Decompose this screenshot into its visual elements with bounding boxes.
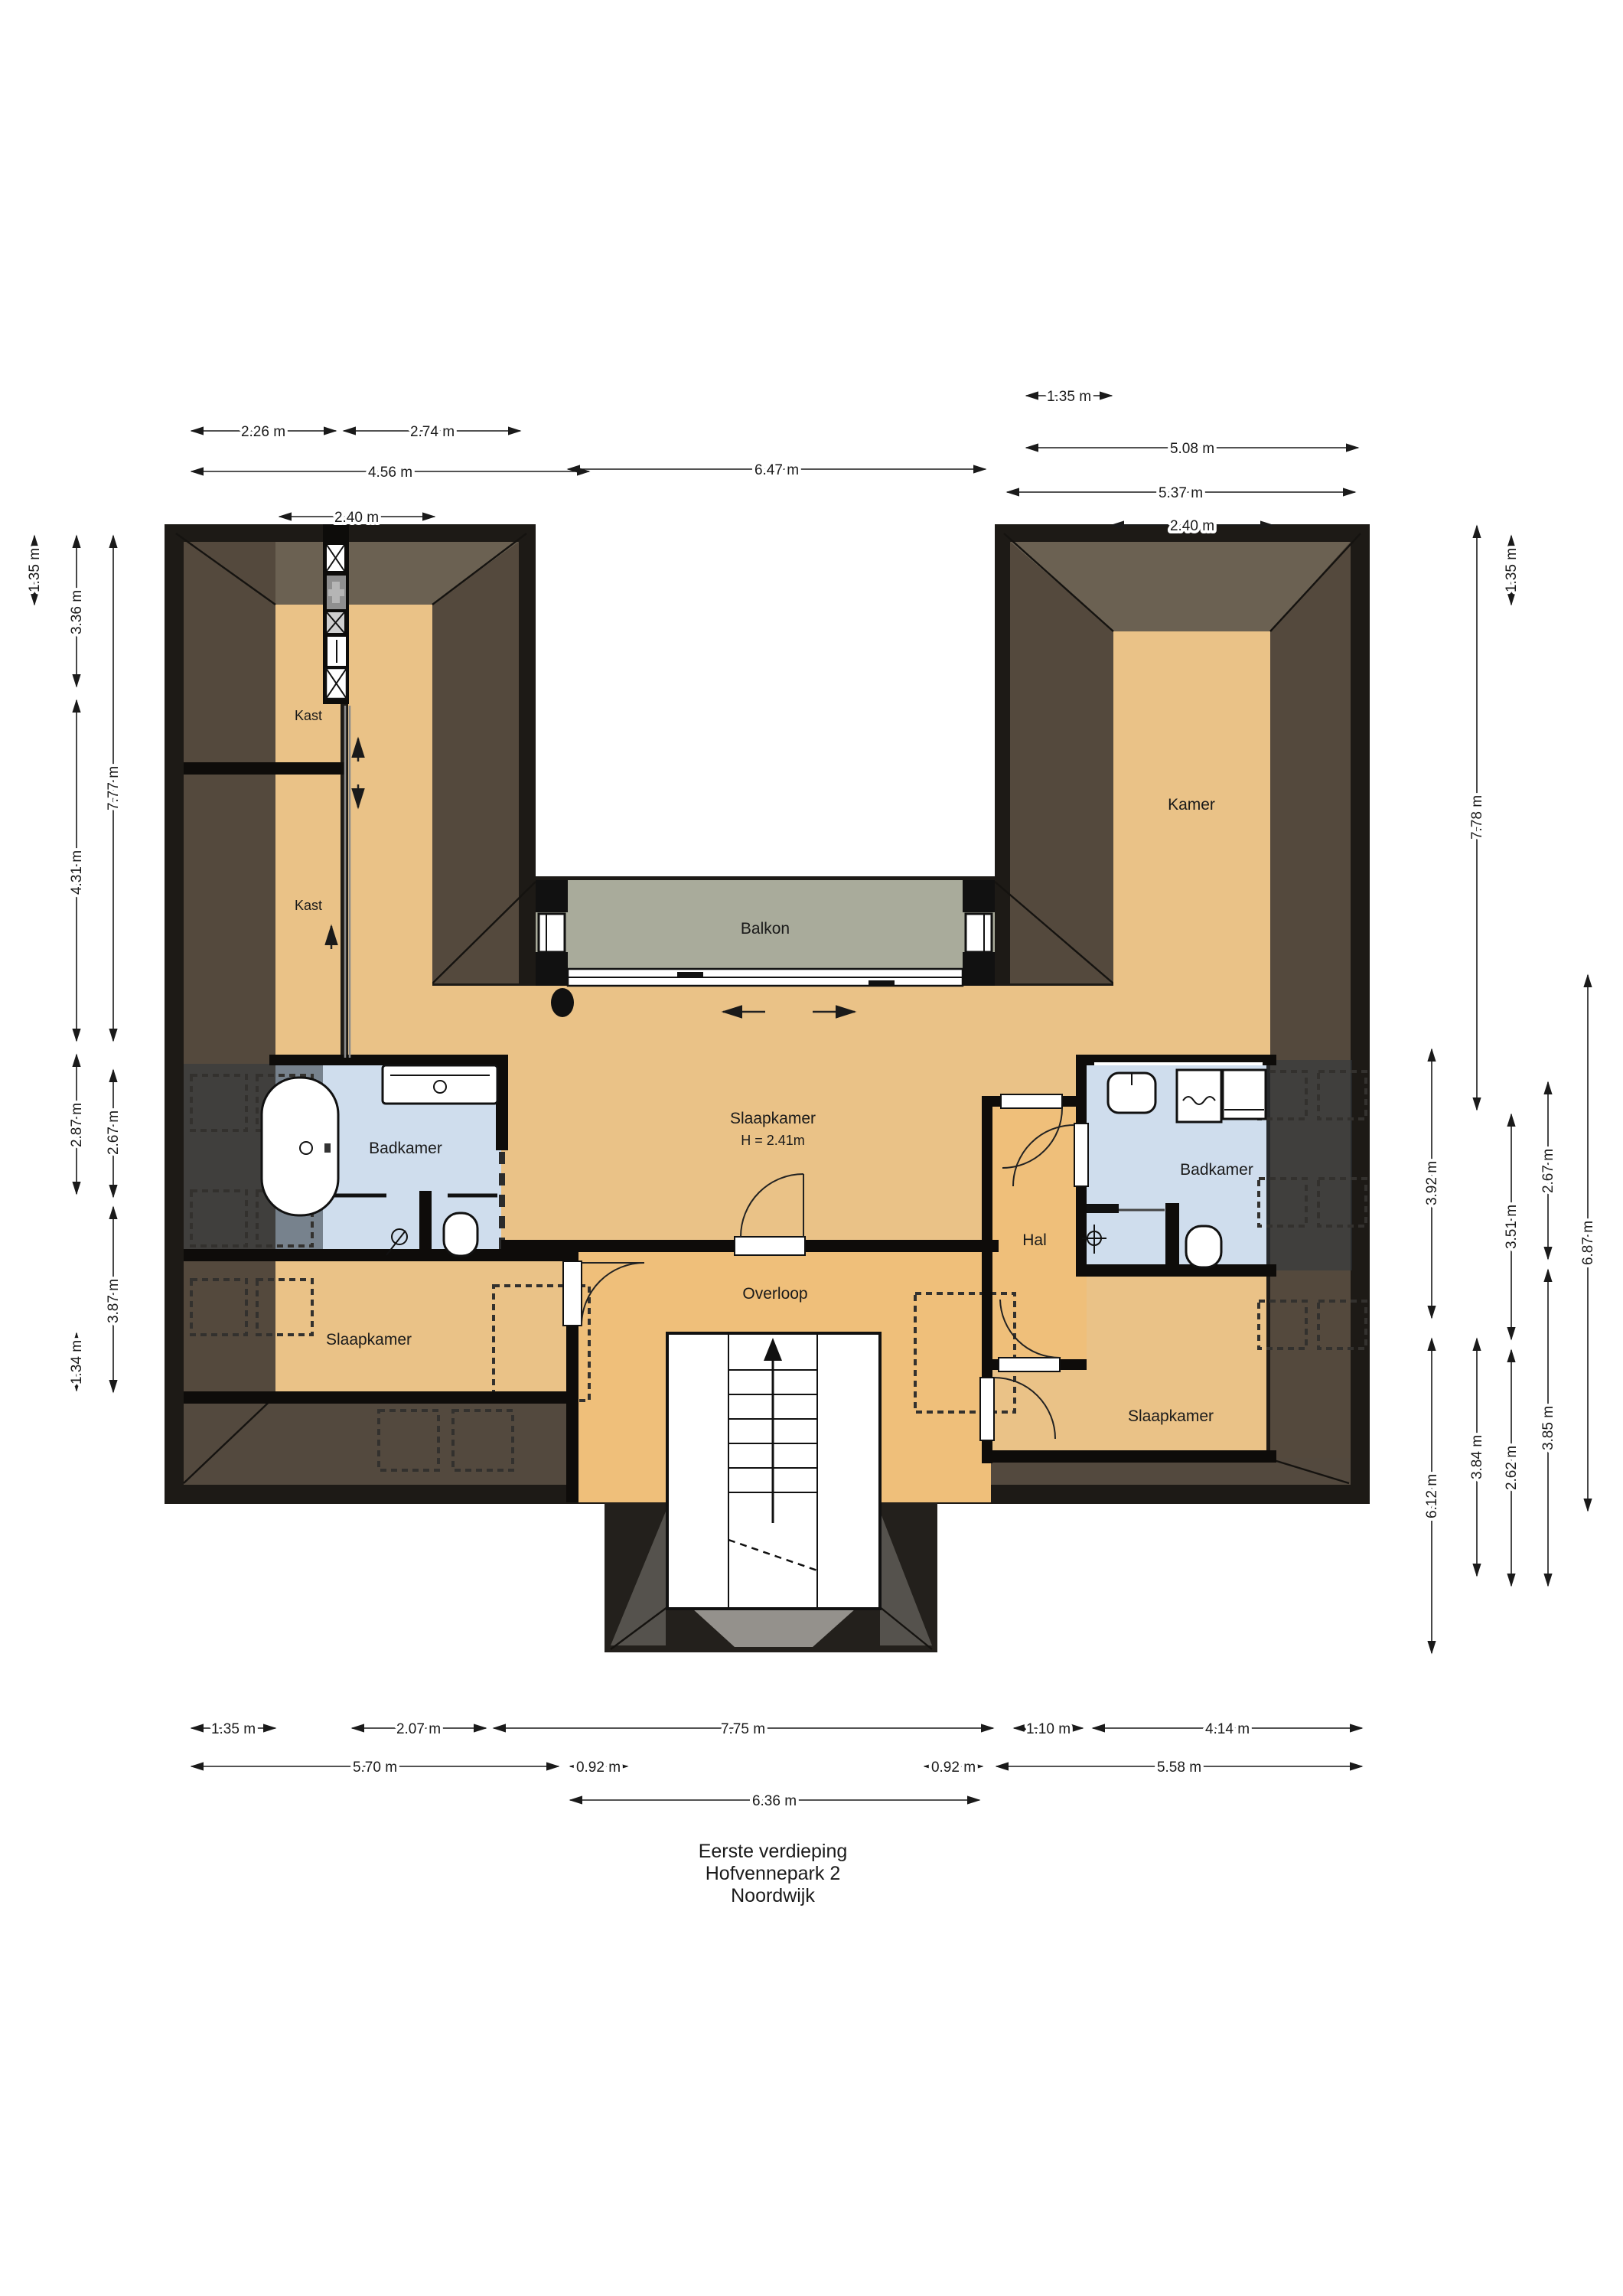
dimensions-bottom: 1.35 m 2.07 m 7.75 m 1.10 m 4.14 m 5.70 … [191, 1721, 1362, 1809]
svg-text:3.84 m: 3.84 m [1469, 1435, 1485, 1479]
dimension-line: 2.26 m [191, 424, 336, 440]
dimension-line: 1.10 m [1014, 1721, 1083, 1737]
svg-text:5.08 m: 5.08 m [1170, 441, 1214, 457]
floorplan-canvas: Kast Kast Kamer Balkon Slaapkamer H = 2.… [0, 0, 1623, 2296]
double-sink-counter [383, 1065, 497, 1104]
dimension-line: 2.40 m [279, 510, 435, 526]
label-kast-top: Kast [295, 708, 322, 723]
svg-text:7.77 m: 7.77 m [106, 766, 122, 810]
svg-text:2.67 m: 2.67 m [1540, 1149, 1556, 1193]
dimension-line: 4.31 m [69, 700, 85, 1041]
stairwell [667, 1333, 880, 1609]
label-badkamer-left: Badkamer [369, 1140, 442, 1157]
title-floor: Eerste verdieping [699, 1841, 848, 1862]
label-hal: Hal [1022, 1231, 1047, 1249]
dimension-line: 2.07 m [352, 1721, 486, 1737]
svg-text:4.14 m: 4.14 m [1205, 1721, 1250, 1737]
dimension-line: 5.70 m [191, 1760, 559, 1776]
svg-text:2.07 m: 2.07 m [396, 1721, 441, 1737]
svg-text:5.70 m: 5.70 m [353, 1760, 397, 1776]
svg-text:6.47 m: 6.47 m [754, 462, 799, 478]
svg-text:0.92 m: 0.92 m [931, 1760, 976, 1776]
dimension-line: 3.87 m [106, 1207, 122, 1392]
svg-text:7.78 m: 7.78 m [1469, 795, 1485, 840]
dimension-line: 6.12 m [1424, 1339, 1440, 1653]
svg-text:1.35 m: 1.35 m [27, 548, 43, 592]
dimension-line: 5.37 m [1007, 485, 1355, 501]
room-strip [348, 605, 432, 987]
label-badkamer-right: Badkamer [1180, 1161, 1253, 1179]
svg-text:1.34 m: 1.34 m [69, 1340, 85, 1384]
dimension-line: 3.92 m [1424, 1049, 1440, 1318]
label-slaapkamer-right: Slaapkamer [1128, 1407, 1214, 1425]
svg-text:2.40 m: 2.40 m [1170, 518, 1214, 534]
dimension-line: 5.58 m [996, 1760, 1362, 1776]
roof-right-wing-east [1270, 542, 1351, 1485]
dimension-line: 2.62 m [1504, 1350, 1520, 1586]
dimension-line: 1.35 m [1504, 536, 1520, 605]
svg-text:2.67 m: 2.67 m [106, 1110, 122, 1155]
dimensions-left: 1.35 m 3.36 m 7.77 m 4.31 m 2.87 m 2.67 … [27, 536, 122, 1392]
svg-text:4.31 m: 4.31 m [69, 850, 85, 895]
svg-text:2.62 m: 2.62 m [1504, 1446, 1520, 1490]
svg-text:1.35 m: 1.35 m [211, 1721, 256, 1737]
dimension-line: 5.08 m [1026, 441, 1358, 457]
label-room-height: H = 2.41m [741, 1133, 805, 1148]
dimension-line: 0.92 m [924, 1760, 983, 1776]
svg-text:3.87 m: 3.87 m [106, 1279, 122, 1323]
dimension-line: 6.36 m [570, 1793, 979, 1809]
dimension-line: 3.85 m [1540, 1270, 1556, 1586]
svg-text:3.36 m: 3.36 m [69, 590, 85, 634]
svg-text:1.35 m: 1.35 m [1047, 389, 1091, 405]
roof-left-wing-east [432, 542, 519, 983]
dimension-line: 7.77 m [106, 536, 122, 1041]
dimension-line: 7.78 m [1469, 526, 1485, 1110]
svg-text:1.35 m: 1.35 m [1504, 548, 1520, 592]
svg-text:2.87 m: 2.87 m [69, 1103, 85, 1147]
dimension-line: 7.75 m [494, 1721, 993, 1737]
roof-left-wing-west2 [184, 542, 275, 1485]
svg-text:5.58 m: 5.58 m [1157, 1760, 1201, 1776]
label-overloop: Overloop [742, 1285, 807, 1303]
dimension-line: 0.92 m [570, 1760, 627, 1776]
dimension-line: 3.36 m [69, 536, 85, 687]
column-dot [551, 988, 574, 1017]
dimension-line: 4.14 m [1093, 1721, 1362, 1737]
dimension-line: 3.51 m [1504, 1114, 1520, 1339]
label-kast-bottom: Kast [295, 898, 322, 913]
svg-text:3.85 m: 3.85 m [1540, 1406, 1556, 1450]
dimension-line: 1.35 m [27, 536, 43, 605]
svg-text:3.92 m: 3.92 m [1424, 1161, 1440, 1205]
dimensions-right: 1.35 m 7.78 m 3.92 m 2.67 m 6.87 m 3.51 … [1424, 526, 1596, 1653]
toilet [1186, 1226, 1221, 1267]
dimension-line: 1.35 m [191, 1721, 275, 1737]
room-central-upper [348, 986, 1270, 1064]
label-slaapkamer-center: Slaapkamer [730, 1110, 816, 1127]
svg-text:6.36 m: 6.36 m [752, 1793, 797, 1809]
shower [1177, 1070, 1221, 1122]
svg-text:2.40 m: 2.40 m [334, 510, 379, 526]
svg-text:7.75 m: 7.75 m [721, 1721, 765, 1737]
svg-text:6.12 m: 6.12 m [1424, 1474, 1440, 1518]
dimension-line: 1.35 m [1026, 389, 1112, 405]
label-kamer: Kamer [1168, 796, 1215, 814]
svg-text:2.74 m: 2.74 m [410, 424, 455, 440]
dimension-line: 2.74 m [344, 424, 520, 440]
toilet [444, 1213, 477, 1256]
label-slaapkamer-left: Slaapkamer [326, 1331, 412, 1349]
label-balkon: Balkon [741, 920, 790, 938]
room-slaapkamer-left [275, 1255, 566, 1402]
balcony-window-right [966, 914, 992, 952]
dimension-line: 3.84 m [1469, 1339, 1485, 1576]
svg-text:6.87 m: 6.87 m [1580, 1221, 1596, 1265]
title-block: Eerste verdieping Hofvennepark 2 Noordwi… [699, 1841, 848, 1906]
dimension-line: 2.87 m [69, 1055, 85, 1194]
dimension-line: 2.67 m [106, 1070, 122, 1197]
roof-bottom-left [184, 1402, 566, 1485]
svg-text:1.10 m: 1.10 m [1026, 1721, 1071, 1737]
dimension-line: 2.67 m [1540, 1082, 1556, 1259]
svg-text:4.56 m: 4.56 m [368, 465, 412, 481]
dimension-line: 6.47 m [568, 462, 986, 478]
washing-machine [1223, 1070, 1266, 1119]
dimensions-top: 1.35 m 2.26 m 2.74 m 5.08 m 4.56 m 6.47 … [191, 389, 1358, 534]
svg-text:5.37 m: 5.37 m [1159, 485, 1203, 501]
dimension-line: 1.34 m [69, 1333, 85, 1391]
balcony-window-left [539, 914, 565, 952]
dimension-line: 4.56 m [191, 465, 589, 481]
svg-text:0.92 m: 0.92 m [576, 1760, 621, 1776]
low-roof-zone-right [1266, 1060, 1352, 1270]
title-city: Noordwijk [731, 1885, 815, 1906]
dimension-line: 6.87 m [1580, 975, 1596, 1511]
svg-text:2.26 m: 2.26 m [241, 424, 285, 440]
svg-text:3.51 m: 3.51 m [1504, 1205, 1520, 1249]
title-address: Hofvennepark 2 [706, 1863, 841, 1884]
